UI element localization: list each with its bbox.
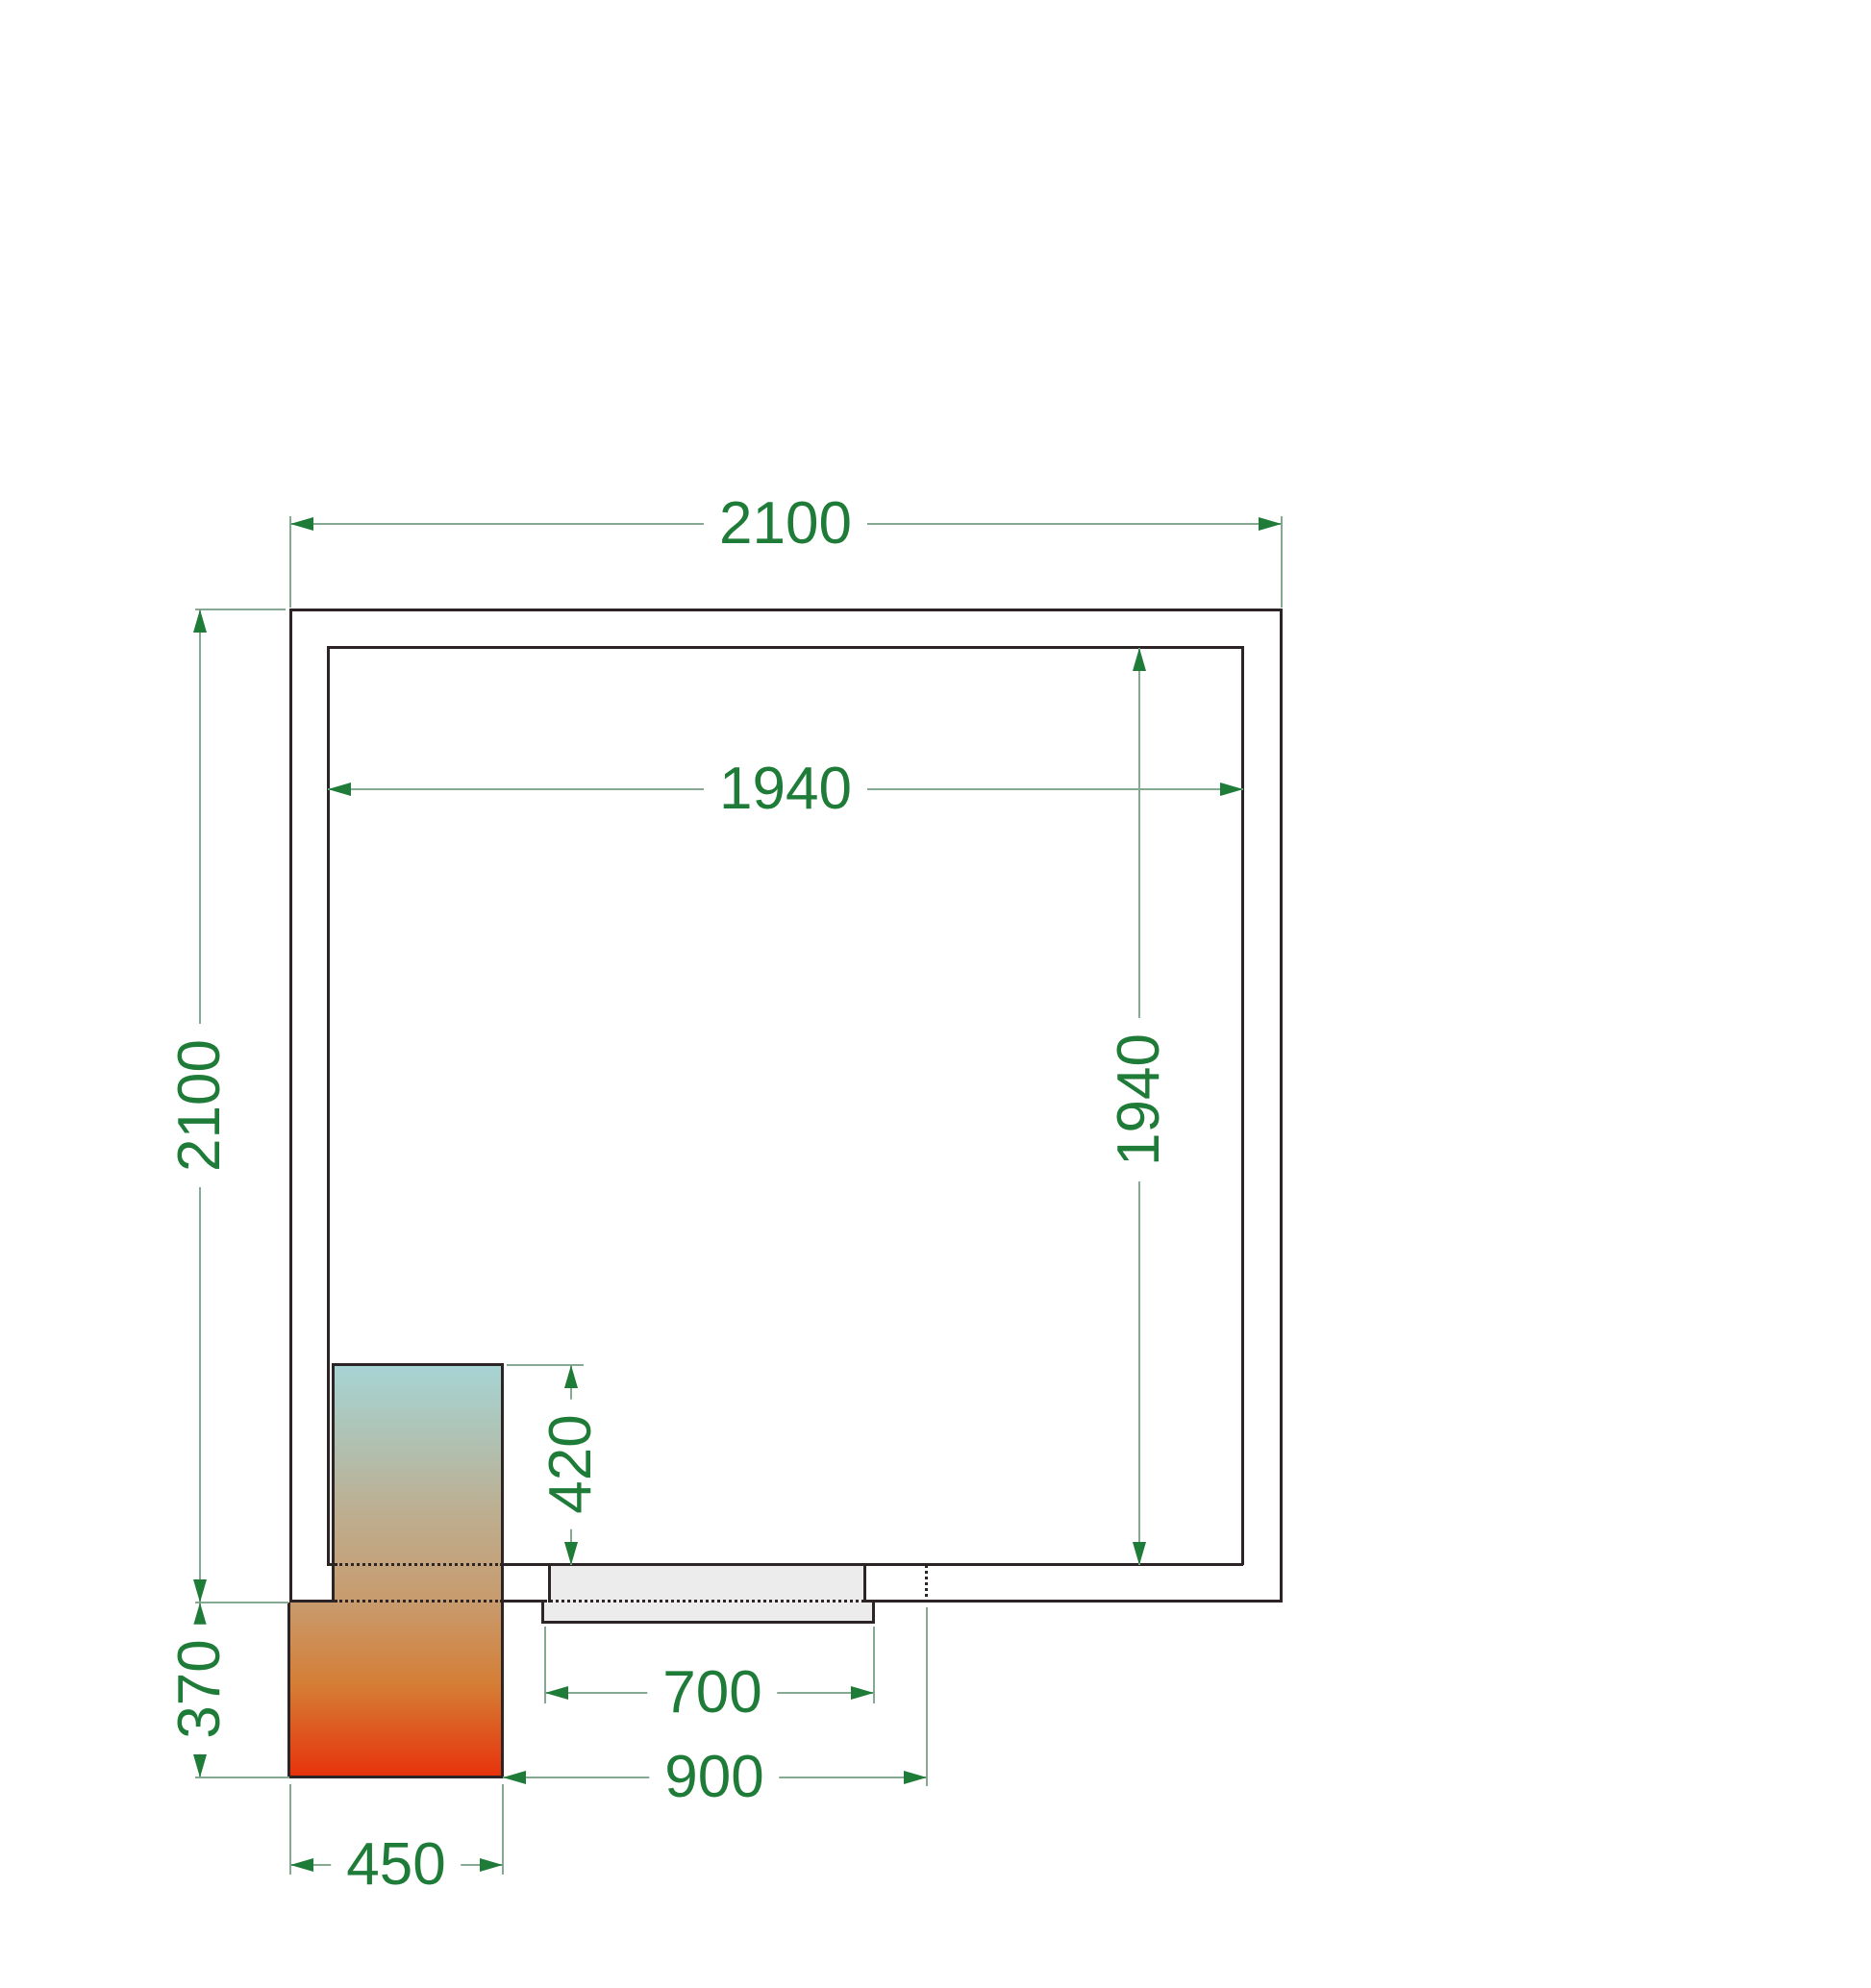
inner-wall-bottom-edge-right-of-door (862, 1563, 1243, 1566)
arrowhead-outer-width-left (290, 517, 313, 531)
arrowhead-450-right (480, 1858, 503, 1872)
arrowhead-inner-width-left (328, 783, 351, 796)
ext-line-outer-depth-top (195, 609, 286, 610)
arrowhead-outer-width-right (1259, 517, 1282, 531)
arrowhead-420-top (564, 1365, 578, 1388)
arrowhead-outer-depth-bottom (193, 1579, 207, 1603)
arrowhead-450-left (290, 1858, 313, 1872)
door-leaf-outside (541, 1603, 875, 1624)
door-leaf-in-opening (548, 1563, 866, 1603)
dim-text-outer-depth: 2100 (164, 1024, 236, 1187)
dim-text-370: 370 (164, 1624, 236, 1753)
ext-line-370-bottom (195, 1777, 289, 1778)
arrowhead-370-bottom (193, 1754, 207, 1777)
ext-line-outer-depth-bottom (195, 1602, 288, 1603)
arrowhead-370-top (193, 1603, 207, 1626)
inner-wall-top-edge (328, 646, 1243, 649)
arrowhead-900-left (503, 1771, 526, 1784)
arrowhead-inner-depth-top (1133, 648, 1146, 671)
outer-wall-bottom-edge-mid (501, 1600, 546, 1603)
dim-text-420: 420 (536, 1399, 607, 1528)
dim-text-700: 700 (647, 1657, 777, 1728)
arrowhead-900-right (904, 1771, 927, 1784)
ext-line-900-right (926, 1607, 928, 1786)
dim-text-900: 900 (649, 1742, 779, 1813)
dim-text-450: 450 (331, 1829, 461, 1901)
hidden-inner-wall-edge-behind-unit (335, 1563, 503, 1566)
arrowhead-inner-depth-bottom (1133, 1542, 1146, 1565)
dim-text-inner-width: 1940 (704, 754, 867, 825)
arrowhead-700-right (851, 1686, 874, 1700)
arrowhead-700-left (545, 1686, 568, 1700)
arrowhead-outer-depth-top (193, 609, 207, 633)
outer-wall-left-edge (289, 609, 292, 1603)
hidden-door-frame-edge (925, 1565, 928, 1603)
cooling-unit-inside-block (332, 1363, 504, 1603)
cooling-unit-outside-block (287, 1603, 504, 1778)
hidden-outer-wall-edge-behind-door (544, 1600, 864, 1603)
dim-text-inner-depth: 1940 (1104, 1018, 1175, 1181)
arrowhead-420-bottom (564, 1542, 578, 1565)
inner-wall-bottom-edge-left-of-door (501, 1563, 552, 1566)
arrowhead-inner-width-right (1220, 783, 1243, 796)
floor-plan-canvas: 2100 2100 1940 1940 420 370 700 900 450 (0, 0, 1871, 1988)
outer-wall-top-edge (290, 609, 1282, 611)
dim-text-outer-width: 2100 (704, 488, 867, 559)
hidden-outer-wall-edge-behind-unit (335, 1600, 503, 1603)
outer-wall-right-edge (1280, 609, 1283, 1603)
